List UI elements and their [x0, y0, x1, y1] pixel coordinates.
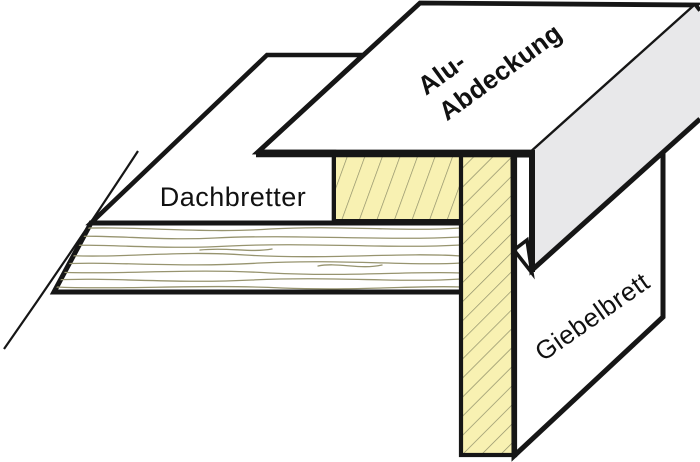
- svg-text:Alu- Abdeckung: Alu- Abdeckung: [412, 0, 567, 128]
- diagram-canvas: Dachbretter Alu- Abdeckung Giebelbrett: [0, 0, 700, 462]
- wood-grain-lines: [54, 228, 461, 289]
- roof-verge-diagram: Dachbretter Alu- Abdeckung Giebelbrett: [0, 0, 700, 462]
- roof-board-front-face: [54, 223, 464, 292]
- break-line: [4, 151, 138, 349]
- gable-board-section: [461, 155, 515, 455]
- roof-boards-section: [334, 155, 463, 221]
- svg-text:Giebelbrett: Giebelbrett: [529, 266, 655, 367]
- label-dachbretter: Dachbretter: [160, 182, 307, 212]
- label-alu-abdeckung: Alu- Abdeckung: [412, 0, 567, 128]
- label-giebelbrett: Giebelbrett: [529, 266, 655, 367]
